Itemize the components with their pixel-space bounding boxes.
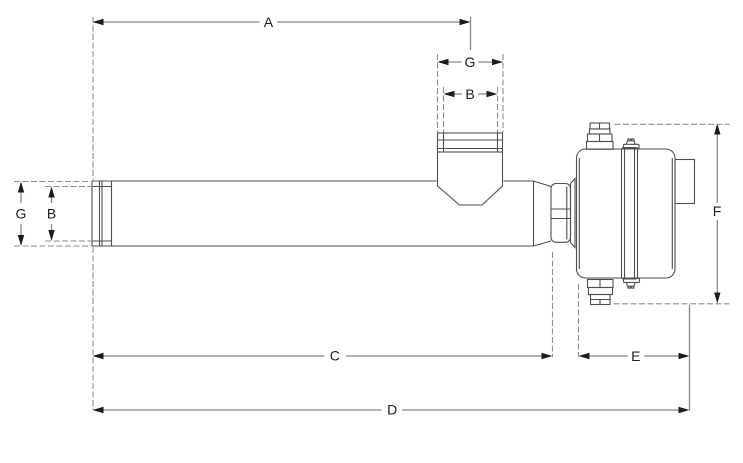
svg-text:E: E (631, 348, 640, 364)
svg-text:C: C (330, 348, 340, 364)
svg-text:D: D (387, 402, 397, 418)
svg-text:G: G (16, 206, 27, 222)
svg-text:F: F (713, 203, 722, 219)
svg-text:B: B (47, 206, 56, 222)
svg-text:B: B (465, 86, 474, 102)
svg-text:G: G (465, 54, 476, 70)
svg-text:A: A (264, 14, 274, 30)
